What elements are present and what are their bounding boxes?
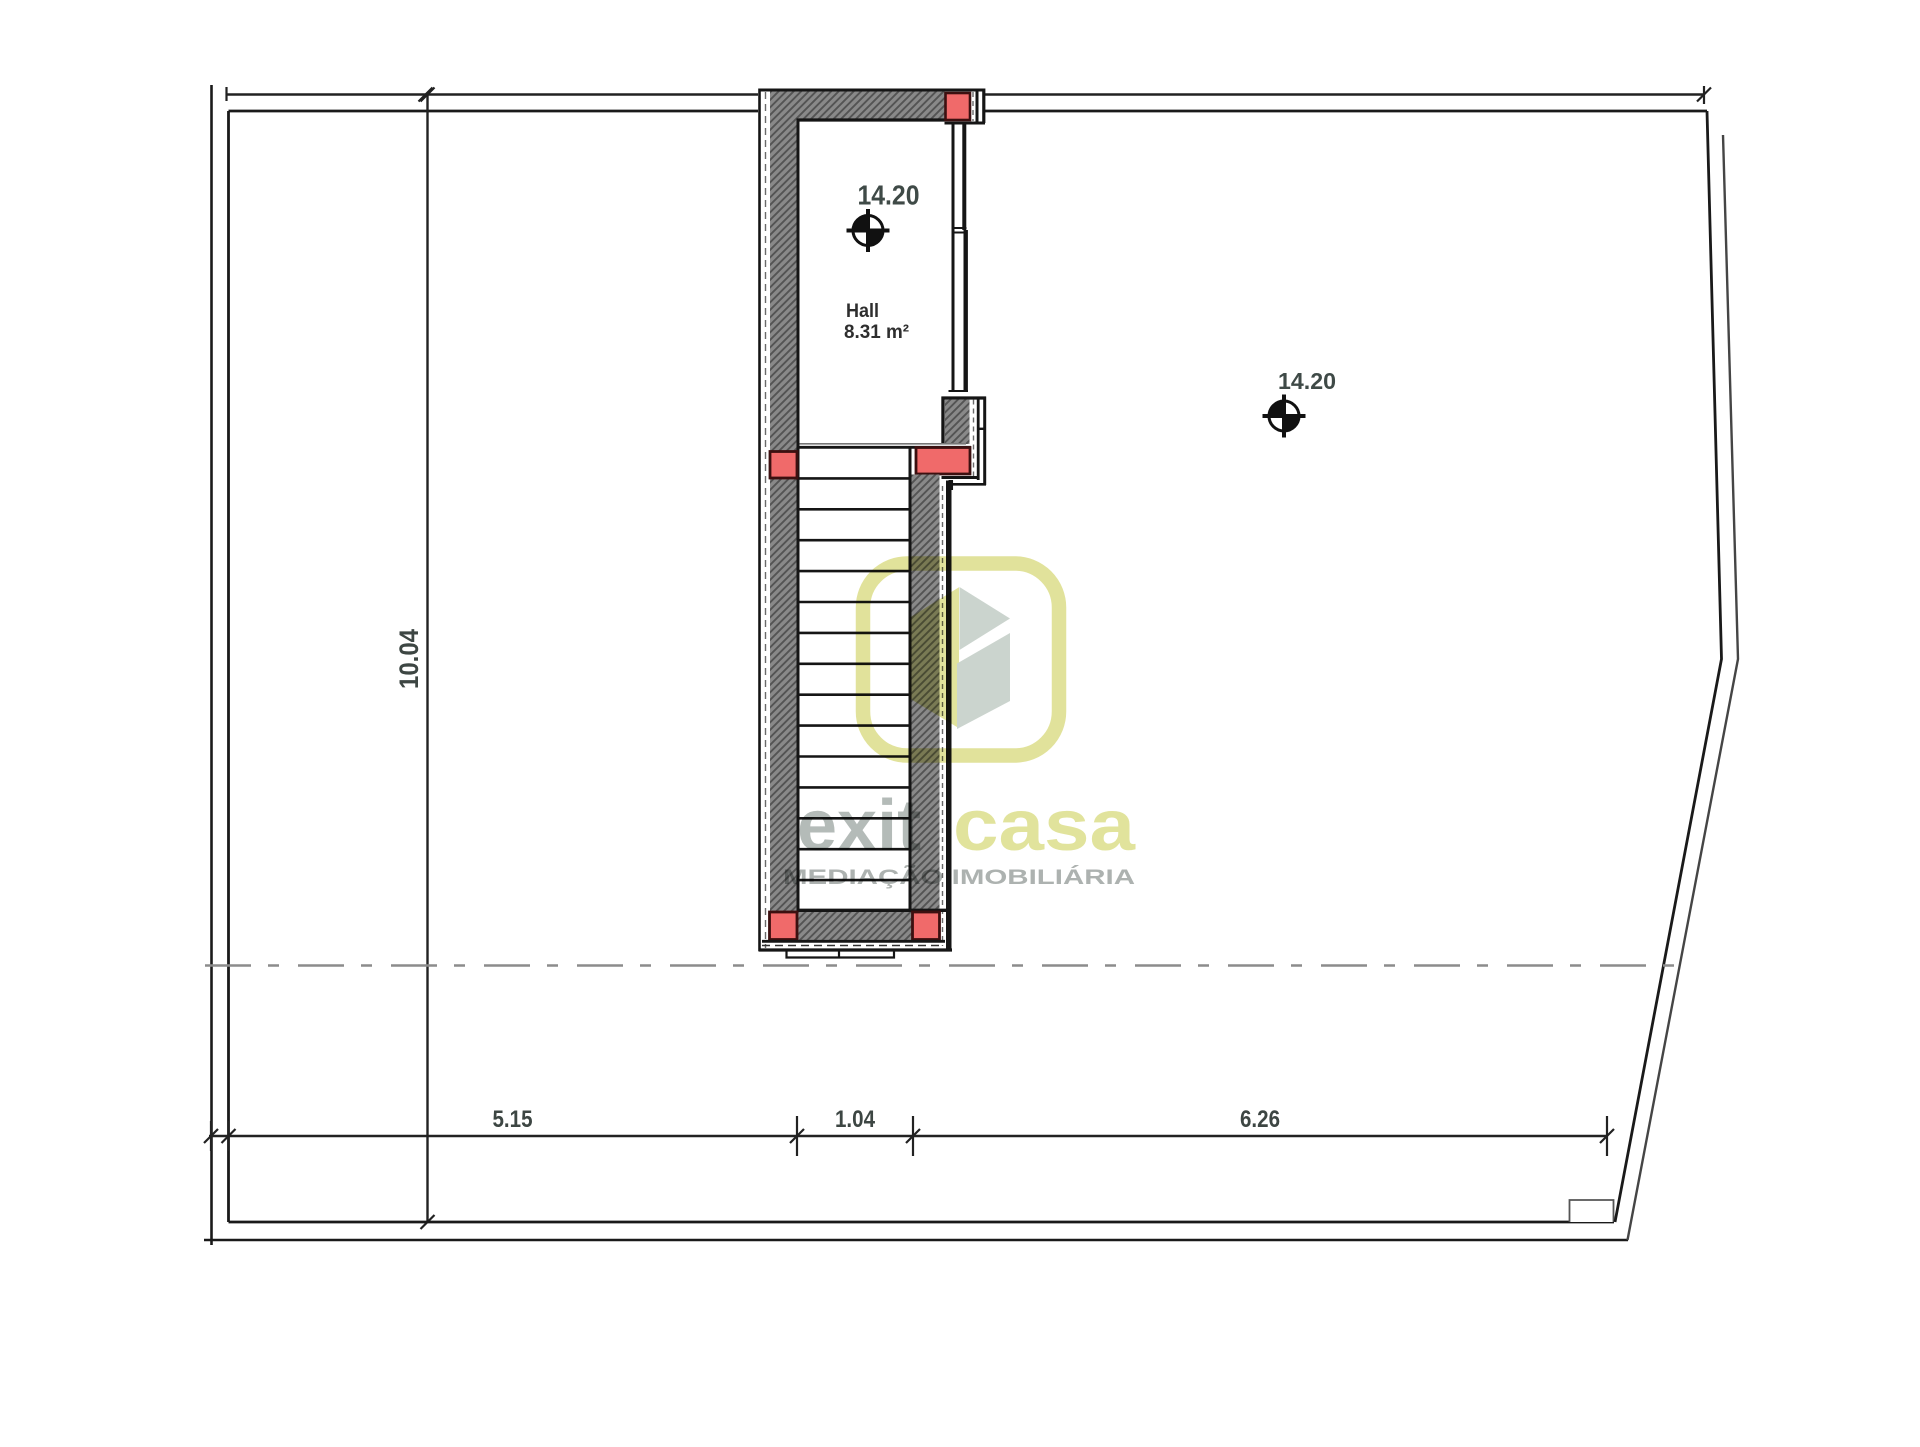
- svg-text:exit: exit: [797, 786, 921, 866]
- svg-text:casa: casa: [953, 786, 1136, 866]
- svg-text:14.20: 14.20: [1278, 368, 1336, 394]
- svg-text:5.15: 5.15: [493, 1106, 533, 1133]
- svg-text:1.04: 1.04: [835, 1106, 876, 1133]
- svg-text:6.26: 6.26: [1240, 1106, 1280, 1133]
- svg-text:8.31 m²: 8.31 m²: [844, 322, 909, 343]
- svg-text:MEDIAÇÃO IMOBILIÁRIA: MEDIAÇÃO IMOBILIÁRIA: [783, 864, 1135, 889]
- svg-text:10.04: 10.04: [394, 629, 424, 689]
- svg-text:Hall: Hall: [846, 301, 879, 322]
- svg-text:14.20: 14.20: [858, 180, 920, 211]
